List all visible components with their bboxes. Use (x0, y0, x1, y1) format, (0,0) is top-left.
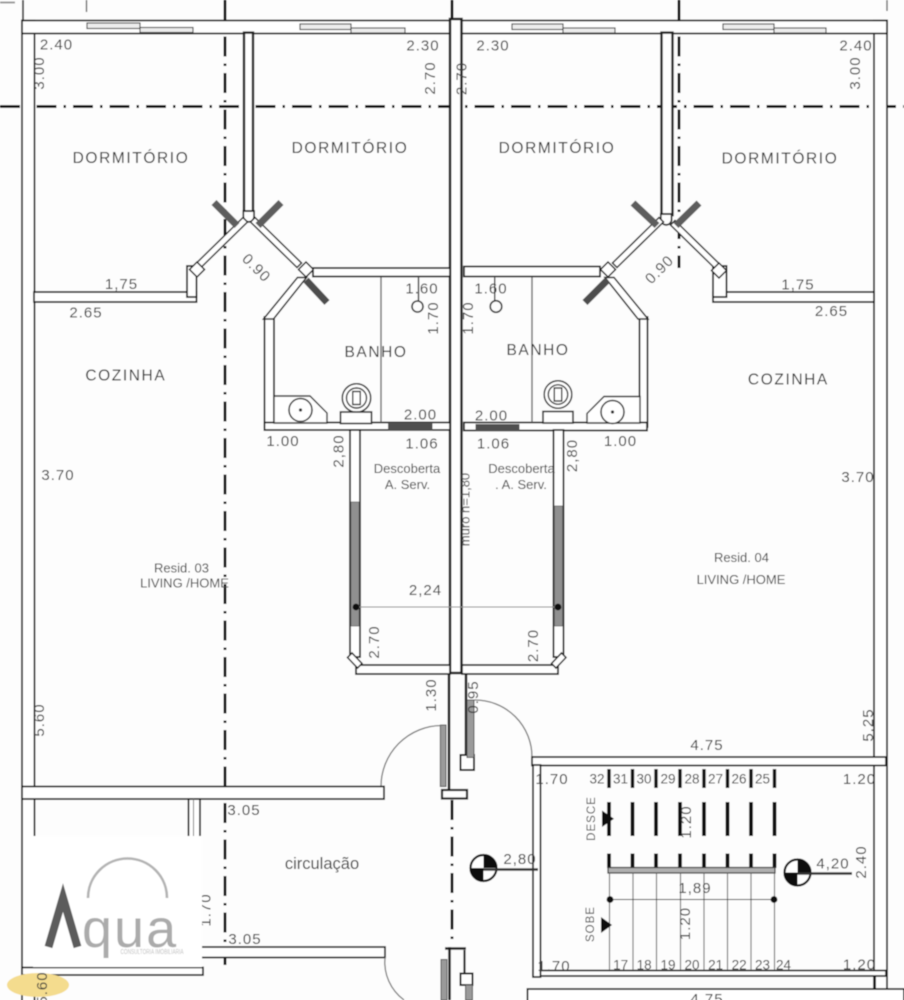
svg-text:BANHO: BANHO (506, 342, 569, 359)
svg-text:1.30: 1.30 (423, 678, 440, 711)
svg-text:20: 20 (684, 958, 699, 973)
svg-text:A. Serv.: A. Serv. (385, 477, 430, 492)
svg-text:3.00: 3.00 (847, 56, 864, 89)
svg-text:DORMITÓRIO: DORMITÓRIO (73, 150, 190, 167)
svg-text:BANHO: BANHO (344, 344, 407, 361)
svg-text:1,75: 1,75 (781, 277, 814, 294)
svg-text:2.00: 2.00 (404, 407, 437, 424)
svg-text:5.25: 5.25 (860, 708, 877, 741)
svg-text:30: 30 (636, 772, 651, 787)
svg-text:1.70: 1.70 (537, 958, 570, 975)
svg-text:LIVING /HOME: LIVING /HOME (697, 572, 786, 587)
svg-text:Resid. 03: Resid. 03 (154, 561, 209, 576)
svg-text:2.65: 2.65 (69, 305, 102, 322)
svg-text:31: 31 (613, 772, 628, 787)
svg-text:3.05: 3.05 (228, 931, 261, 948)
svg-text:0.95: 0.95 (465, 680, 482, 713)
svg-text:1.60: 1.60 (474, 281, 507, 298)
svg-text:18: 18 (637, 958, 652, 973)
svg-text:1.06: 1.06 (405, 436, 438, 453)
svg-text:2,24: 2,24 (409, 582, 442, 599)
svg-text:DORMITÓRIO: DORMITÓRIO (722, 151, 839, 168)
svg-text:circulação: circulação (285, 855, 359, 873)
svg-text:3.70: 3.70 (41, 467, 74, 484)
svg-text:21: 21 (708, 958, 723, 973)
svg-text:3.00: 3.00 (31, 56, 48, 89)
svg-text:2.40: 2.40 (839, 38, 872, 55)
svg-text:5.60: 5.60 (31, 703, 48, 736)
svg-text:3.05: 3.05 (227, 802, 260, 819)
svg-text:4,20: 4,20 (816, 856, 849, 873)
svg-text:24: 24 (776, 958, 792, 973)
svg-text:DORMITÓRIO: DORMITÓRIO (292, 140, 409, 157)
svg-text:25: 25 (755, 772, 770, 787)
svg-text:1.20: 1.20 (843, 771, 876, 788)
svg-text:2,80: 2,80 (331, 434, 348, 467)
svg-text:1.70: 1.70 (425, 301, 442, 334)
svg-text:1.00: 1.00 (266, 433, 299, 450)
svg-text:1,75: 1,75 (105, 276, 138, 293)
svg-text:22: 22 (732, 958, 747, 973)
svg-text:4.75: 4.75 (690, 991, 723, 1000)
svg-text:1.06: 1.06 (477, 436, 510, 453)
svg-text:2.70: 2.70 (525, 629, 542, 662)
svg-text:1.60: 1.60 (405, 281, 438, 298)
svg-text:2.65: 2.65 (815, 303, 848, 320)
svg-text:32: 32 (589, 772, 604, 787)
svg-text:1.70: 1.70 (460, 301, 477, 334)
svg-text:2.00: 2.00 (475, 408, 508, 425)
svg-text:1.20: 1.20 (677, 907, 694, 940)
svg-text:3.70: 3.70 (841, 469, 874, 486)
svg-text:27: 27 (708, 772, 723, 787)
svg-text:DORMITÓRIO: DORMITÓRIO (499, 140, 616, 157)
svg-text:2.70: 2.70 (422, 61, 439, 94)
svg-text:Descoberta: Descoberta (374, 461, 441, 476)
svg-text:. A. Serv.: . A. Serv. (495, 477, 547, 492)
svg-text:Descoberta: Descoberta (488, 461, 555, 476)
svg-text:5.60: 5.60 (34, 971, 51, 1000)
svg-text:1,89: 1,89 (678, 880, 711, 897)
svg-text:1.20: 1.20 (678, 805, 695, 838)
svg-text:4.75: 4.75 (690, 737, 723, 754)
svg-text:LIVING /HOME: LIVING /HOME (140, 576, 229, 591)
svg-text:26: 26 (731, 772, 746, 787)
svg-text:CONSULTORIA IMOBILIARIA: CONSULTORIA IMOBILIARIA (121, 949, 184, 956)
svg-text:2.70: 2.70 (366, 625, 383, 658)
svg-text:2.70: 2.70 (454, 62, 471, 95)
svg-text:2.40: 2.40 (853, 845, 870, 878)
svg-text:DESCE: DESCE (586, 796, 598, 841)
svg-text:17: 17 (613, 958, 628, 973)
svg-text:SOBE: SOBE (585, 906, 597, 942)
svg-text:1.70: 1.70 (535, 771, 568, 788)
svg-text:2,80: 2,80 (564, 439, 581, 472)
svg-text:COZINHA: COZINHA (748, 372, 829, 389)
svg-text:1.00: 1.00 (604, 433, 637, 450)
svg-text:23: 23 (755, 958, 770, 973)
svg-text:28: 28 (684, 772, 699, 787)
svg-text:2,80: 2,80 (503, 851, 536, 868)
svg-text:29: 29 (660, 772, 675, 787)
svg-text:19: 19 (660, 958, 675, 973)
svg-text:2.30: 2.30 (406, 38, 439, 55)
svg-text:muro h=1,80: muro h=1,80 (458, 473, 473, 546)
svg-text:2.30: 2.30 (476, 38, 509, 55)
svg-text:COZINHA: COZINHA (85, 368, 166, 385)
svg-text:Resid. 04: Resid. 04 (714, 550, 769, 565)
svg-text:2.40: 2.40 (40, 37, 73, 54)
svg-text:1.20: 1.20 (843, 957, 876, 974)
